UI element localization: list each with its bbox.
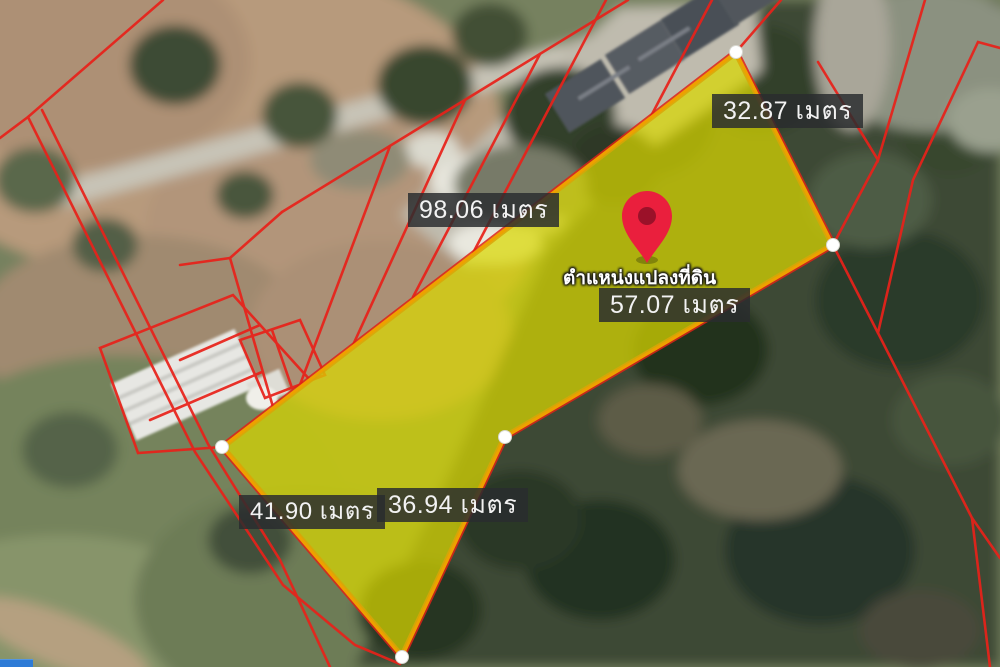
pin-caption: ตำแหน่งแปลงที่ดิน [563, 263, 716, 293]
measurement-label-north-east: 32.87 เมตร [712, 94, 863, 128]
measurement-label-north-west: 98.06 เมตร [408, 193, 559, 227]
satellite-map[interactable]: 32.87 เมตร 98.06 เมตร 57.07 เมตร 41.90 เ… [0, 0, 1000, 667]
measurement-label-south-west: 41.90 เมตร [239, 495, 385, 529]
map-control-fragment[interactable] [0, 659, 33, 667]
measurement-label-south: 36.94 เมตร [377, 488, 528, 522]
measurement-label-east: 57.07 เมตร [599, 288, 750, 322]
